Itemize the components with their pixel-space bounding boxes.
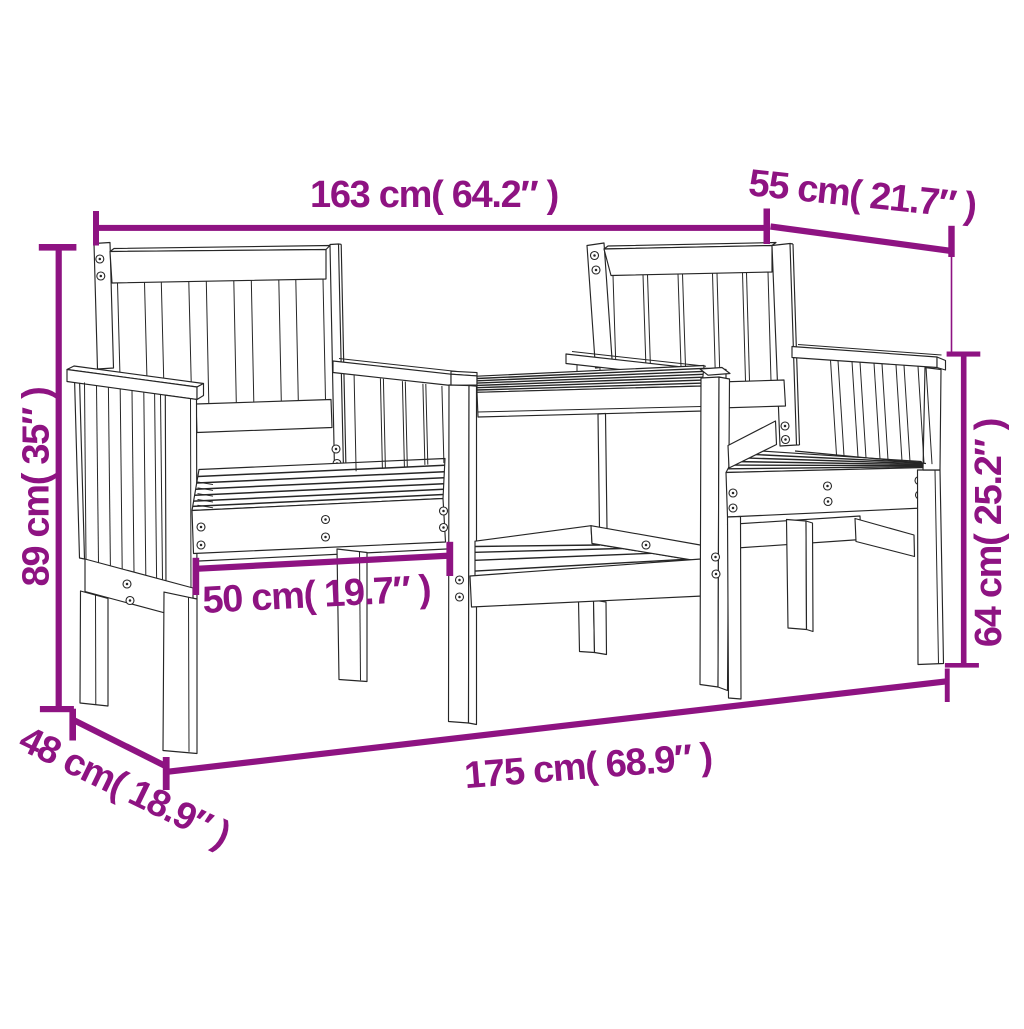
svg-text:163 cm( 64.2″ ): 163 cm( 64.2″ )	[310, 174, 558, 216]
svg-text:64 cm( 25.2″ ): 64 cm( 25.2″ )	[968, 419, 1010, 647]
svg-text:89 cm( 35″ ): 89 cm( 35″ )	[16, 387, 58, 586]
